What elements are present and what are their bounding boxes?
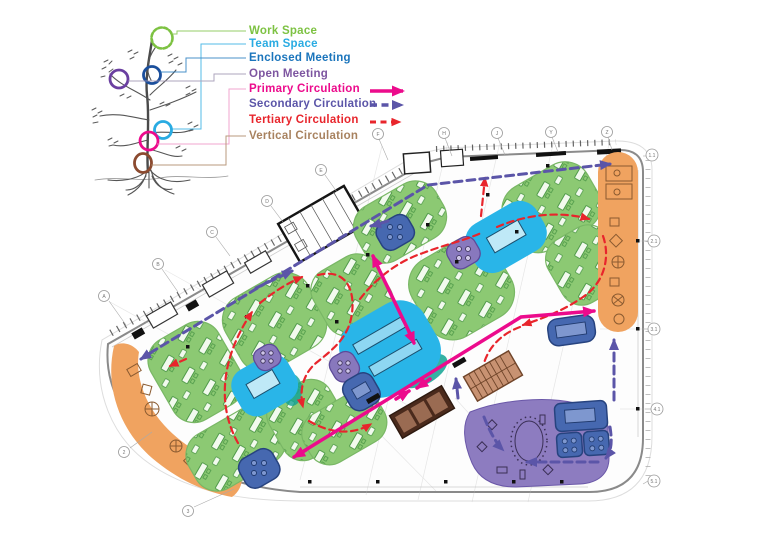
grid-label: 2: [123, 450, 126, 456]
grid-label: 1.1: [649, 153, 656, 159]
tree-illustration: [92, 28, 228, 196]
enclosed-meeting-cluster: [554, 400, 610, 457]
work-space-tree-circle: [152, 28, 173, 49]
legend-connector-lines: [128, 31, 246, 165]
grid-label: H: [442, 131, 446, 137]
vertical-circulation-tree-circle: [135, 154, 152, 173]
diagram-canvas: F H J Y Z A B C D E 1.1 2.1 3.1 4.1 5.1 …: [0, 0, 768, 543]
floor-plan-diagram: F H J Y Z A B C D E 1.1 2.1 3.1 4.1 5.1 …: [0, 0, 768, 543]
legend-arrow-swatches: [370, 91, 403, 122]
tree-roots: [108, 170, 190, 195]
open-meeting-tree-circle: [110, 70, 128, 88]
grid-label: 3.1: [651, 327, 658, 333]
tree-foliage: [92, 50, 198, 151]
grid-label: 5.1: [651, 479, 658, 485]
grid-label: 4.1: [654, 407, 661, 413]
grid-label: C: [210, 230, 214, 236]
grid-label: F: [376, 132, 379, 138]
grid-label: D: [265, 199, 269, 205]
grid-label: 2.1: [651, 239, 658, 245]
grid-label: Z: [605, 130, 608, 136]
grid-label: 3: [187, 509, 190, 515]
